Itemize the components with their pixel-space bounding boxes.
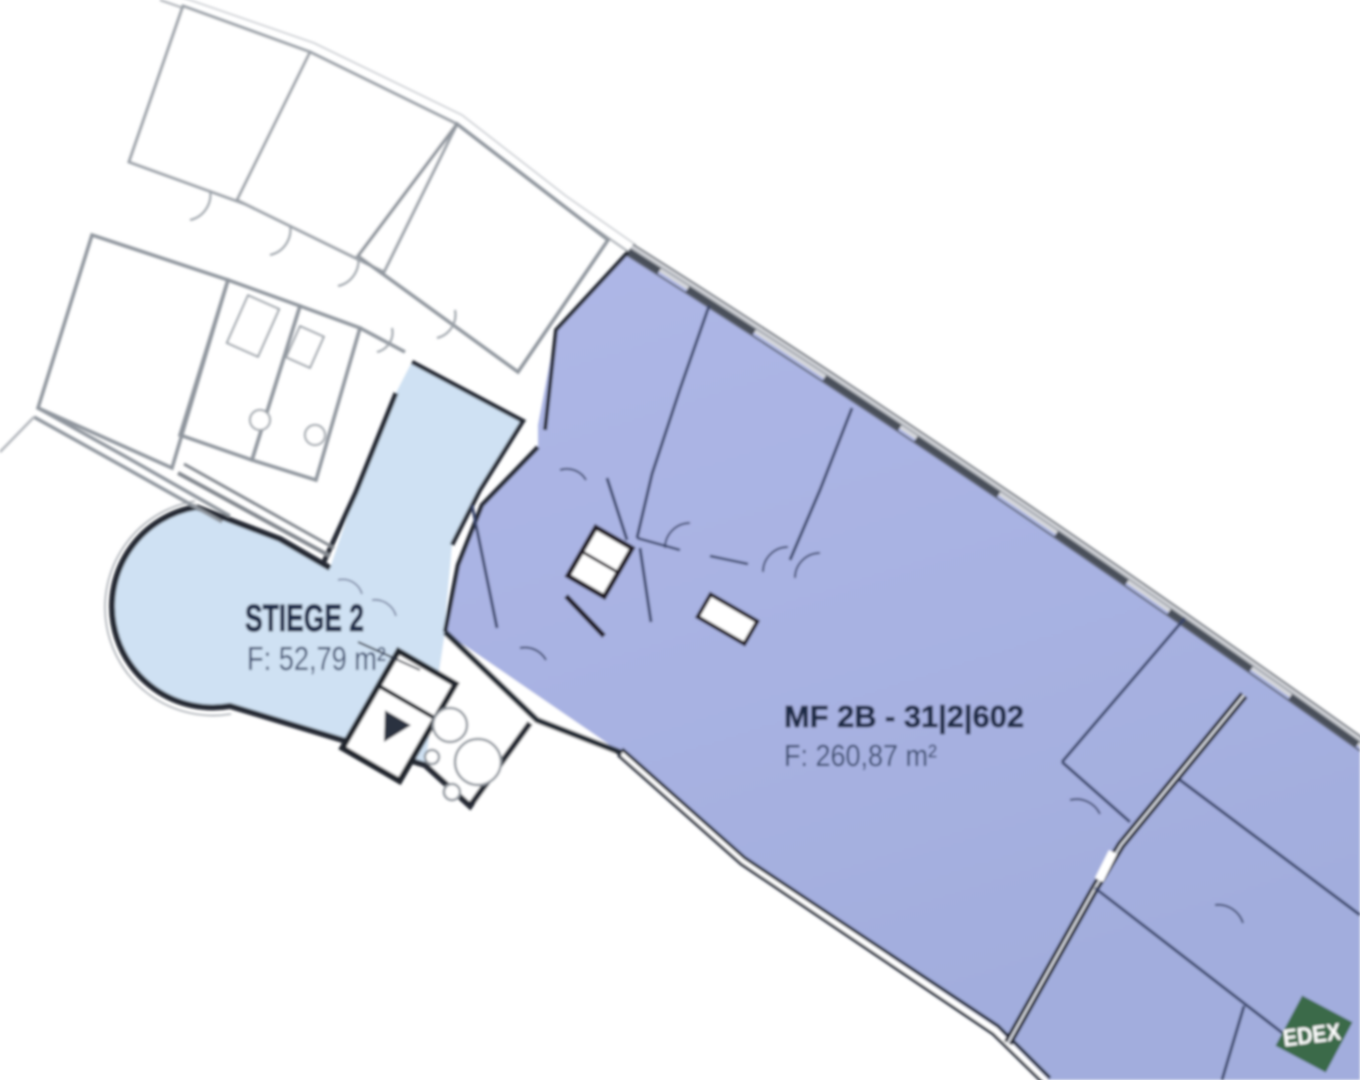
svg-text:F: 260,87 m²: F: 260,87 m² — [784, 738, 937, 773]
svg-text:F: 52,79 m²: F: 52,79 m² — [247, 640, 386, 677]
svg-text:STIEGE 2: STIEGE 2 — [245, 598, 364, 640]
svg-text:MF 2B - 31|2|602: MF 2B - 31|2|602 — [784, 699, 1024, 734]
